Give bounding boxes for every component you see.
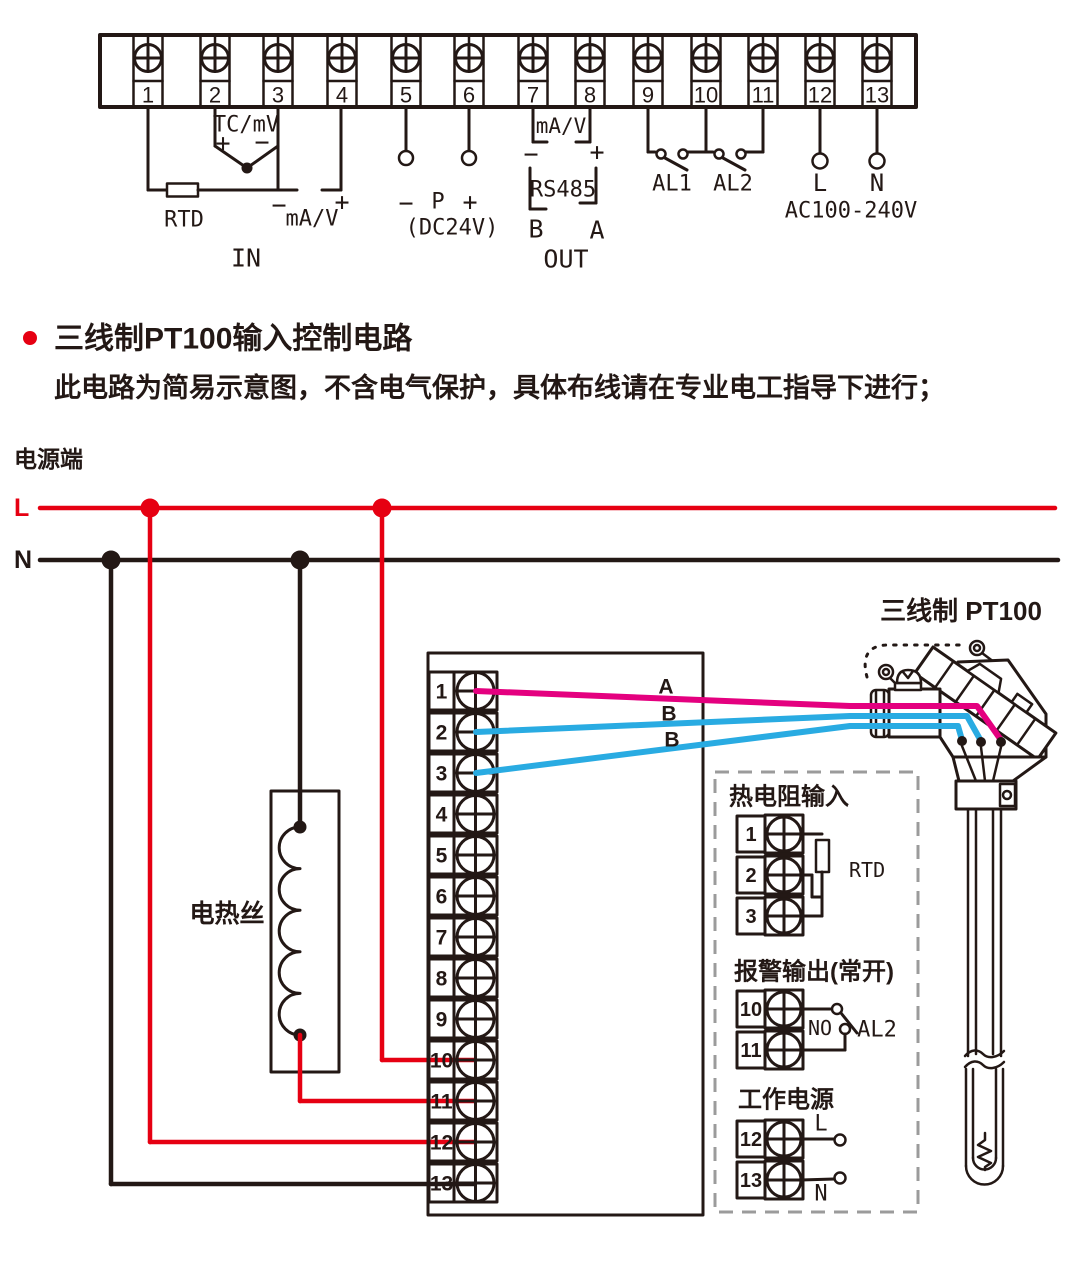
terminal-number: 4 [436,804,448,827]
terminal-number: 13 [430,1173,453,1196]
pin-circle [813,154,828,169]
label-neutral: N [870,169,884,197]
terminal-number: 10 [694,83,718,108]
label-a: A [589,216,604,245]
inset-alarm-wiring: NO AL2 [801,1004,897,1050]
terminal-number: 11 [430,1091,453,1114]
panel-terminal: 1 [134,35,163,108]
panel-terminal: 8 [576,35,605,108]
contact-circle [737,150,746,159]
controller-terminal-strip: 12345678910111213 [429,672,497,1202]
panel-terminal: 7 [519,35,548,108]
controller-terminal: 11 [429,1082,497,1120]
terminal-number: 7 [436,927,448,950]
wire-b-label: B [661,703,676,726]
terminal-number: 10 [430,1050,453,1073]
inset-terminal: 2 [737,856,803,894]
terminal-number: 10 [740,999,762,1021]
controller-terminal: 7 [429,918,497,956]
section-note: 此电路为简易示意图，不含电气保护，具体布线请在专业电工指导下进行； [54,372,945,403]
terminal-number: 13 [740,1170,762,1192]
rail-n-label: N [14,546,32,574]
label-plus: + [215,129,230,158]
label-al2: AL2 [713,172,753,197]
label-ma-v-out: mA/V [536,114,587,138]
tc-input-wiring: TC/mV + − [213,107,279,190]
pin-circle [462,151,476,165]
label-ac-range: AC100-240V [785,199,917,224]
junction-dot [242,163,253,174]
resistor-icon [816,840,829,872]
label-ma-v: mA/V [286,207,339,232]
terminal-number: 5 [436,845,448,868]
controller-terminal: 8 [429,959,497,997]
section-title: 三线制PT100输入控制电路 [54,323,413,356]
ac-power-wiring: L N AC100-240V [785,107,917,224]
label-minus: − [398,189,413,218]
panel-terminal-strip: 12345678910111213 [134,35,892,108]
terminal-number: 1 [436,681,448,704]
label-rs485: RS485 [530,178,596,203]
panel-terminal-diagram: 12345678910111213 RTD TC/mV + − − mA/V +… [100,35,917,274]
inset-terminal: 10 [737,990,803,1028]
terminal-number: 3 [272,83,284,108]
label-in: IN [231,244,261,273]
panel-terminal: 11 [749,35,778,108]
label-rtd: RTD [849,858,885,882]
terminal-number: 8 [436,968,448,991]
label-b: B [528,215,543,244]
panel-terminal: 4 [328,35,357,108]
wire-b-label: B [664,729,679,752]
label-out: OUT [543,245,588,274]
junction-dot [373,499,392,518]
label-line: L [813,169,827,197]
controller-terminal: 12 [429,1123,497,1161]
inset-terminal: 3 [737,897,803,935]
pin-circle [399,151,413,165]
inset-power-wiring: L N [801,1112,846,1207]
label-no: NO [808,1016,832,1040]
wire-post-dot [996,737,1006,747]
terminal-number: 2 [745,865,756,887]
label-dc24v: (DC24V) [406,216,499,241]
terminal-number: 11 [752,83,775,108]
heater-label: 电热丝 [189,900,264,928]
wire-post-dot [976,737,986,747]
coil-icon [279,827,300,1035]
rtd-element-icon [978,1133,991,1170]
label-p: P [431,190,444,215]
panel-terminal: 6 [455,35,484,108]
sensor-probe [965,809,1004,1184]
label-al1: AL1 [652,172,692,197]
alarm-contacts-wiring: AL1 AL2 [648,107,763,197]
inset-panel: 热电阻输入 12310111213 RTD 报警输出(常开) NO [715,772,918,1212]
panel-terminal: 10 [692,35,721,108]
terminal-number: 2 [436,722,448,745]
panel-terminal: 9 [634,35,663,108]
power-terminal-label: 电源端 [14,446,83,472]
junction-dot [102,551,121,570]
controller-terminal: 5 [429,836,497,874]
terminal-number: 4 [336,83,348,108]
label-al2: AL2 [857,1018,897,1043]
inset-terminal-strip: 12310111213 [737,815,803,1199]
wire-a-label: A [658,676,673,699]
inset-power-title: 工作电源 [738,1087,834,1114]
inset-rtd-wiring: RTD [801,834,885,916]
switch-blade-icon [665,158,687,170]
terminal-number: 7 [527,83,539,108]
label-plus: + [589,138,604,167]
label-line: L [814,1112,827,1137]
controller-outline [428,653,703,1215]
tube-break [965,1061,1004,1068]
terminal-number: 12 [740,1129,762,1151]
junction-dot [141,499,160,518]
terminal-number: 6 [436,886,448,909]
ma-v-output-rs485-wiring: mA/V − + RS485 B A OUT [523,107,604,274]
label-neutral: N [814,1182,827,1207]
switch-blade-icon [723,158,745,170]
pin-circle [835,1173,846,1184]
terminal-number: 3 [745,906,756,928]
junction-dot [291,551,310,570]
label-rtd: RTD [164,208,204,233]
wiring-diagram-page: 12345678910111213 RTD TC/mV + − − mA/V +… [0,0,1080,1286]
terminal-number: 6 [463,83,475,108]
inset-terminal: 11 [737,1031,803,1069]
junction-dot [294,821,307,834]
rail-l-label: L [14,494,29,522]
power-24v-wiring: − P + (DC24V) [398,107,498,241]
terminal-number: 12 [430,1132,453,1155]
label-minus: − [523,140,538,169]
terminal-number: 13 [865,83,889,108]
controller-terminal: 4 [429,795,497,833]
panel-terminal: 12 [806,35,835,108]
tube-break [965,1050,1004,1057]
terminal-number: 5 [400,83,412,108]
terminal-number: 1 [142,83,154,108]
terminal-number: 9 [436,1009,448,1032]
pin-circle [835,1135,846,1146]
heater-outline [271,791,339,1072]
terminal-number: 9 [642,83,654,108]
panel-terminal: 2 [201,35,230,108]
inset-rtd-title: 热电阻输入 [729,783,849,811]
panel-terminal: 13 [863,35,892,108]
bullet-icon [23,331,37,345]
wire-post-dot [957,736,967,746]
terminal-number: 8 [584,83,596,108]
terminal-number: 2 [209,83,221,108]
panel-terminal: 5 [392,35,421,108]
label-minus: − [254,128,269,157]
terminal-number: 12 [808,83,832,108]
inset-alarm-title: 报警输出(常开) [734,958,894,986]
eyelet-icon [879,665,893,679]
controller-terminal: 9 [429,1000,497,1038]
sensor-label: 三线制 PT100 [880,596,1042,626]
section-heading: 三线制PT100输入控制电路 此电路为简易示意图，不含电气保护，具体布线请在专业… [23,323,945,404]
controller-terminal: 6 [429,877,497,915]
controller-terminal: 13 [429,1164,497,1202]
inset-terminal: 12 [737,1120,803,1158]
terminal-number: 3 [436,763,448,786]
panel-terminal: 3 [264,35,293,108]
inset-terminal: 1 [737,815,803,853]
label-plus: + [462,188,477,217]
label-plus: + [334,188,349,217]
inset-terminal: 13 [737,1161,803,1199]
terminal-number: 11 [740,1040,761,1062]
terminal-number: 1 [745,824,756,846]
control-circuit-diagram: 电源端 L N 电热丝 [14,446,1063,1215]
label-minus: − [271,191,286,220]
resistor-icon [167,184,198,197]
controller-terminal: 10 [429,1041,497,1079]
contact-circle [679,150,688,159]
pin-circle [870,154,885,169]
